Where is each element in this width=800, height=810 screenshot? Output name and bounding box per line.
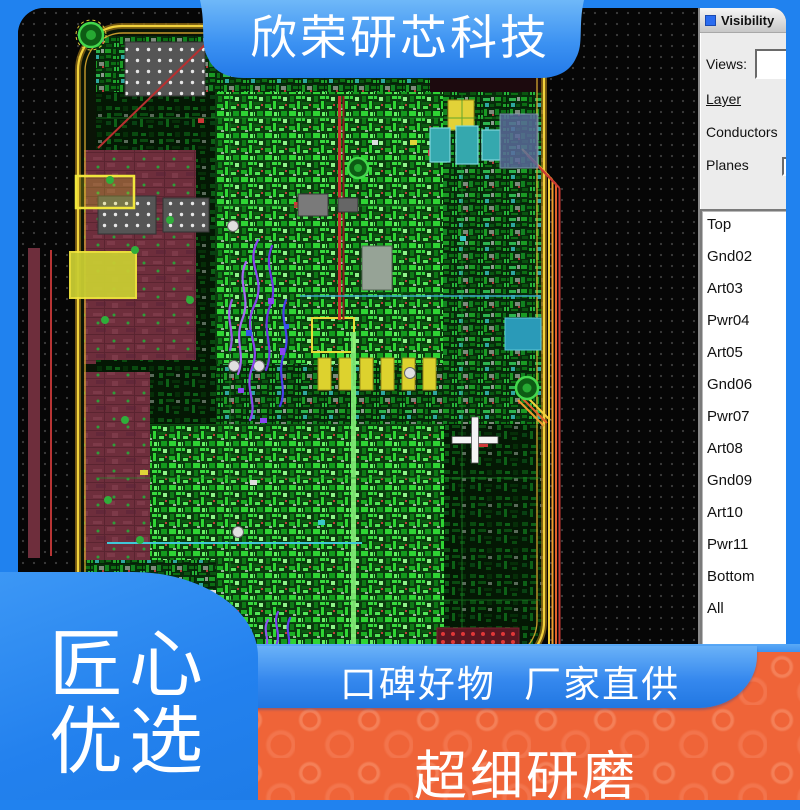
layer-item-art05[interactable]: Art05 bbox=[707, 344, 786, 376]
layer-item-all[interactable]: All bbox=[707, 600, 786, 632]
ribbon-text: 口碑好物 厂家直供 bbox=[280, 654, 740, 708]
layer-item-art03[interactable]: Art03 bbox=[707, 280, 786, 312]
bottom-slogan: 超细研磨 bbox=[286, 734, 766, 810]
layer-item-pwr07[interactable]: Pwr07 bbox=[707, 408, 786, 440]
pcb-board-graphic bbox=[28, 20, 560, 650]
layer-link[interactable]: Layer bbox=[706, 91, 786, 107]
corner-badge: 匠心 优选 bbox=[0, 572, 258, 800]
visibility-panel-body: Views: Layer Conductors Planes Top Gnd02… bbox=[700, 33, 786, 650]
planes-checkbox[interactable] bbox=[782, 157, 786, 176]
corner-badge-text: 匠心 优选 bbox=[0, 572, 258, 780]
corner-badge-line2: 优选 bbox=[0, 703, 258, 780]
layer-item-pwr04[interactable]: Pwr04 bbox=[707, 312, 786, 344]
pcb-canvas[interactable] bbox=[18, 8, 786, 650]
conductors-label: Conductors bbox=[706, 124, 778, 140]
visibility-panel: Visibility Views: Layer Conductors Plane… bbox=[698, 8, 786, 650]
layer-list: Top Gnd02 Art03 Pwr04 Art05 Gnd06 Pwr07 … bbox=[700, 209, 786, 647]
layer-item-gnd02[interactable]: Gnd02 bbox=[707, 248, 786, 280]
layer-item-pwr11[interactable]: Pwr11 bbox=[707, 536, 786, 568]
layer-item-bottom[interactable]: Bottom bbox=[707, 568, 786, 600]
corner-badge-line1: 匠心 bbox=[0, 626, 258, 703]
layer-item-art08[interactable]: Art08 bbox=[707, 440, 786, 472]
layer-item-gnd09[interactable]: Gnd09 bbox=[707, 472, 786, 504]
pcb-screenshot: Visibility Views: Layer Conductors Plane… bbox=[18, 8, 786, 650]
planes-label: Planes bbox=[706, 157, 749, 173]
company-banner-text: 欣荣研芯科技 bbox=[0, 0, 800, 76]
page-root: Visibility Views: Layer Conductors Plane… bbox=[0, 0, 800, 800]
layer-item-art10[interactable]: Art10 bbox=[707, 504, 786, 536]
layer-item-gnd06[interactable]: Gnd06 bbox=[707, 376, 786, 408]
layer-item-top[interactable]: Top bbox=[707, 216, 786, 248]
